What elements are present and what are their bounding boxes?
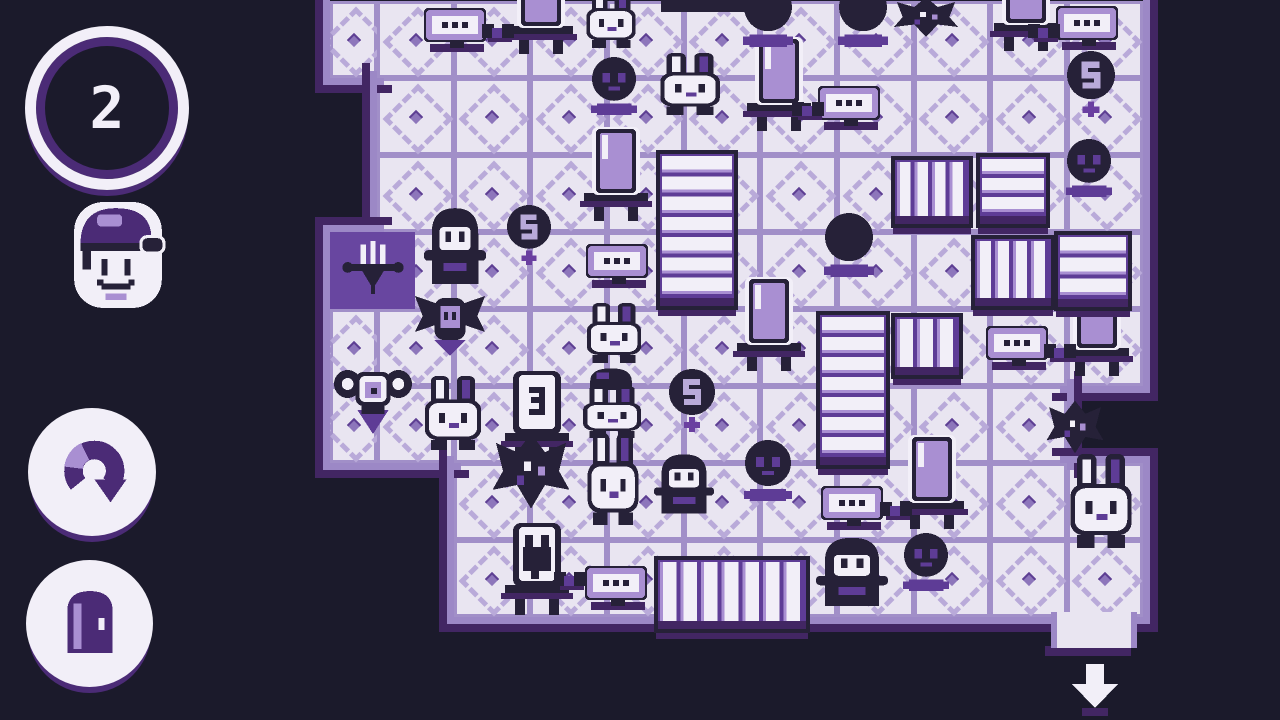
undo-icon bbox=[55, 433, 129, 511]
player-avatar-icon bbox=[70, 198, 166, 312]
exit-arrow-icon bbox=[1070, 664, 1120, 716]
undo-button[interactable] bbox=[28, 408, 156, 536]
exit-level-button[interactable] bbox=[26, 560, 153, 687]
move-counter-value: 2 bbox=[90, 74, 125, 142]
exit-doorway[interactable] bbox=[1051, 612, 1137, 648]
move-counter: 2 bbox=[25, 26, 189, 190]
exit-layer bbox=[0, 0, 1280, 720]
door-icon bbox=[59, 587, 121, 661]
